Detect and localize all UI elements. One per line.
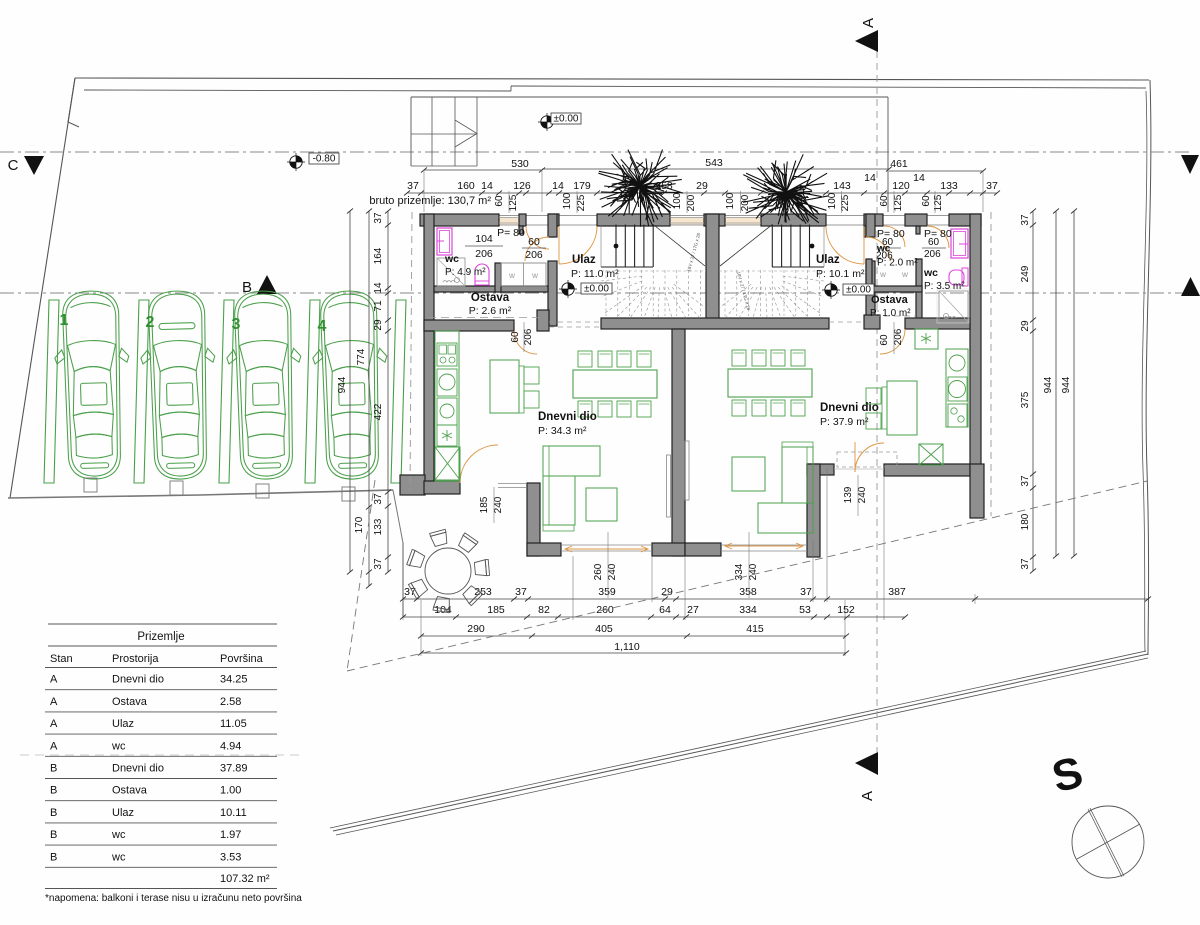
- svg-text:37: 37: [986, 180, 998, 192]
- svg-text:Prizemlje: Prizemlje: [137, 631, 184, 643]
- svg-text:133: 133: [940, 180, 958, 192]
- svg-text:1,110: 1,110: [614, 641, 640, 653]
- svg-text:139: 139: [843, 486, 854, 503]
- svg-text:Ostava: Ostava: [112, 696, 148, 708]
- svg-text:944: 944: [337, 376, 348, 393]
- svg-text:422: 422: [373, 403, 384, 420]
- svg-text:Stan: Stan: [50, 653, 73, 665]
- svg-text:A: A: [50, 718, 58, 730]
- svg-text:185: 185: [487, 604, 505, 616]
- svg-text:164: 164: [373, 247, 384, 264]
- svg-text:P: 11.0 m²: P: 11.0 m²: [571, 268, 619, 280]
- svg-text:60: 60: [494, 195, 505, 207]
- svg-text:Ostava: Ostava: [871, 294, 909, 306]
- svg-text:34.25: 34.25: [220, 674, 248, 686]
- svg-text:774: 774: [356, 348, 367, 365]
- svg-text:11.05: 11.05: [220, 718, 247, 730]
- svg-text:37: 37: [1020, 558, 1031, 570]
- svg-text:1.00: 1.00: [220, 785, 241, 797]
- svg-text:415: 415: [746, 623, 764, 635]
- svg-text:387: 387: [888, 586, 906, 598]
- svg-text:A: A: [859, 791, 876, 801]
- svg-text:82: 82: [538, 604, 550, 616]
- svg-text:29: 29: [696, 180, 708, 192]
- svg-text:125: 125: [508, 194, 519, 211]
- svg-text:37: 37: [407, 180, 419, 192]
- svg-text:wc: wc: [111, 829, 126, 841]
- svg-text:240: 240: [857, 486, 868, 503]
- svg-text:B: B: [242, 279, 252, 296]
- svg-text:133: 133: [373, 518, 384, 535]
- svg-text:170: 170: [354, 516, 365, 533]
- svg-text:wc: wc: [923, 267, 938, 279]
- svg-text:104: 104: [475, 233, 493, 245]
- svg-text:160: 160: [457, 180, 475, 192]
- svg-text:3.53: 3.53: [220, 851, 241, 863]
- svg-text:B: B: [50, 807, 57, 819]
- svg-text:206: 206: [924, 249, 941, 260]
- svg-text:P: 2.6 m²: P: 2.6 m²: [469, 305, 512, 317]
- svg-text:60: 60: [879, 334, 890, 346]
- svg-text:1.97: 1.97: [220, 829, 241, 841]
- svg-text:206: 206: [523, 328, 534, 345]
- svg-text:4.94: 4.94: [220, 740, 241, 752]
- svg-text:C: C: [8, 157, 19, 174]
- svg-text:240: 240: [607, 563, 618, 580]
- svg-text:100: 100: [827, 192, 838, 209]
- svg-text:14: 14: [913, 172, 925, 184]
- svg-text:2.58: 2.58: [220, 696, 241, 708]
- svg-text:37: 37: [1020, 475, 1031, 487]
- svg-text:37.89: 37.89: [220, 763, 248, 775]
- svg-text:wc: wc: [444, 253, 459, 265]
- svg-text:Ostava: Ostava: [471, 292, 510, 304]
- svg-text:71: 71: [373, 300, 384, 312]
- svg-text:37: 37: [373, 558, 384, 570]
- svg-text:B: B: [50, 851, 57, 863]
- svg-text:120: 120: [892, 180, 910, 192]
- svg-text:249: 249: [1020, 265, 1031, 282]
- svg-text:290: 290: [467, 623, 485, 635]
- svg-text:Prostorija: Prostorija: [112, 653, 159, 665]
- svg-text:29: 29: [1020, 320, 1031, 332]
- svg-text:P: 34.3 m²: P: 34.3 m²: [538, 425, 587, 437]
- svg-text:944: 944: [1061, 376, 1072, 393]
- svg-text:240: 240: [493, 496, 504, 513]
- svg-text:126: 126: [513, 180, 531, 192]
- svg-text:260: 260: [593, 563, 604, 580]
- svg-text:w: w: [531, 271, 538, 280]
- svg-text:P: 1.0 m²: P: 1.0 m²: [870, 308, 911, 319]
- svg-text:240: 240: [748, 563, 759, 580]
- svg-text:206: 206: [475, 248, 493, 260]
- svg-text:37: 37: [515, 586, 527, 598]
- svg-text:A: A: [50, 740, 58, 752]
- svg-text:37: 37: [373, 493, 384, 505]
- svg-text:530: 530: [511, 158, 529, 170]
- svg-text:29: 29: [373, 319, 384, 331]
- svg-text:27: 27: [687, 604, 699, 616]
- svg-text:180: 180: [1020, 513, 1031, 530]
- svg-text:179: 179: [573, 180, 591, 192]
- svg-text:200: 200: [740, 194, 751, 211]
- svg-text:-0.80: -0.80: [313, 154, 336, 165]
- svg-text:3: 3: [232, 316, 241, 333]
- svg-text:Površina: Površina: [220, 653, 264, 665]
- svg-text:Ulaz: Ulaz: [816, 254, 840, 266]
- svg-text:107.32 m²: 107.32 m²: [220, 873, 270, 885]
- svg-text:w: w: [879, 270, 886, 279]
- svg-text:14: 14: [481, 180, 493, 192]
- svg-text:200: 200: [686, 194, 697, 211]
- svg-text:125: 125: [933, 194, 944, 211]
- svg-text:A: A: [50, 696, 58, 708]
- svg-text:334: 334: [739, 604, 757, 616]
- svg-text:Dnevni dio: Dnevni dio: [112, 763, 164, 775]
- svg-text:*napomena: balkoni i terase ni: *napomena: balkoni i terase nisu u izrač…: [45, 893, 302, 904]
- svg-text:B: B: [50, 785, 57, 797]
- svg-text:60: 60: [928, 237, 940, 248]
- svg-text:375: 375: [1020, 391, 1031, 408]
- svg-text:60: 60: [879, 195, 890, 207]
- svg-text:405: 405: [595, 623, 613, 635]
- svg-text:225: 225: [576, 194, 587, 211]
- svg-text:60: 60: [921, 195, 932, 207]
- svg-text:206: 206: [893, 328, 904, 345]
- svg-text:Dnevni dio: Dnevni dio: [820, 402, 879, 414]
- svg-text:±0.00: ±0.00: [584, 284, 609, 295]
- svg-text:100: 100: [725, 192, 736, 209]
- svg-text:152: 152: [837, 604, 855, 616]
- svg-text:P: 2.0 m²: P: 2.0 m²: [877, 258, 918, 269]
- svg-text:461: 461: [890, 158, 908, 170]
- svg-text:wc: wc: [111, 851, 126, 863]
- svg-text:P= 80: P= 80: [497, 227, 525, 239]
- svg-text:944: 944: [1043, 376, 1054, 393]
- svg-text:143: 143: [833, 180, 851, 192]
- svg-text:A: A: [50, 674, 58, 686]
- svg-text:37: 37: [800, 586, 812, 598]
- svg-text:14: 14: [373, 282, 384, 294]
- svg-text:Dnevni dio: Dnevni dio: [538, 411, 597, 423]
- svg-text:100: 100: [562, 192, 573, 209]
- svg-text:60: 60: [528, 236, 540, 248]
- svg-text:543: 543: [705, 157, 723, 169]
- svg-text:Ostava: Ostava: [112, 785, 148, 797]
- svg-text:P: 10.1 m²: P: 10.1 m²: [816, 268, 865, 280]
- svg-text:358: 358: [739, 586, 757, 598]
- svg-text:10.11: 10.11: [220, 807, 247, 819]
- svg-text:w: w: [901, 270, 908, 279]
- svg-text:53: 53: [799, 604, 811, 616]
- svg-text:359: 359: [598, 586, 616, 598]
- svg-text:w: w: [508, 271, 515, 280]
- svg-text:206: 206: [525, 249, 543, 261]
- svg-text:37: 37: [1020, 214, 1031, 226]
- svg-text:B: B: [50, 763, 57, 775]
- svg-text:±0.00: ±0.00: [554, 114, 579, 125]
- svg-text:4: 4: [318, 318, 327, 335]
- svg-text:1: 1: [60, 312, 69, 329]
- svg-text:2: 2: [146, 314, 155, 331]
- svg-text:B: B: [50, 829, 57, 841]
- svg-text:29: 29: [661, 586, 673, 598]
- svg-text:125: 125: [893, 194, 904, 211]
- svg-text:64: 64: [659, 604, 671, 616]
- svg-text:14: 14: [552, 180, 564, 192]
- svg-text:60: 60: [510, 331, 521, 343]
- svg-text:185: 185: [479, 496, 490, 513]
- svg-text:P: 4.9 m²: P: 4.9 m²: [445, 267, 486, 278]
- svg-text:Dnevni dio: Dnevni dio: [112, 674, 164, 686]
- svg-text:Ulaz: Ulaz: [112, 718, 134, 730]
- svg-text:A: A: [860, 18, 877, 28]
- svg-text:bruto prizemlje: 130,7 m²: bruto prizemlje: 130,7 m²: [369, 195, 491, 207]
- svg-text:14: 14: [864, 172, 876, 184]
- svg-text:wc: wc: [111, 740, 126, 752]
- svg-text:37: 37: [373, 212, 384, 224]
- svg-text:P: 3.5 m²: P: 3.5 m²: [924, 281, 965, 292]
- svg-text:Ulaz: Ulaz: [572, 254, 596, 266]
- svg-text:Ulaz: Ulaz: [112, 807, 134, 819]
- svg-text:P: 37.9 m²: P: 37.9 m²: [820, 416, 869, 428]
- svg-text:±0.00: ±0.00: [846, 285, 871, 296]
